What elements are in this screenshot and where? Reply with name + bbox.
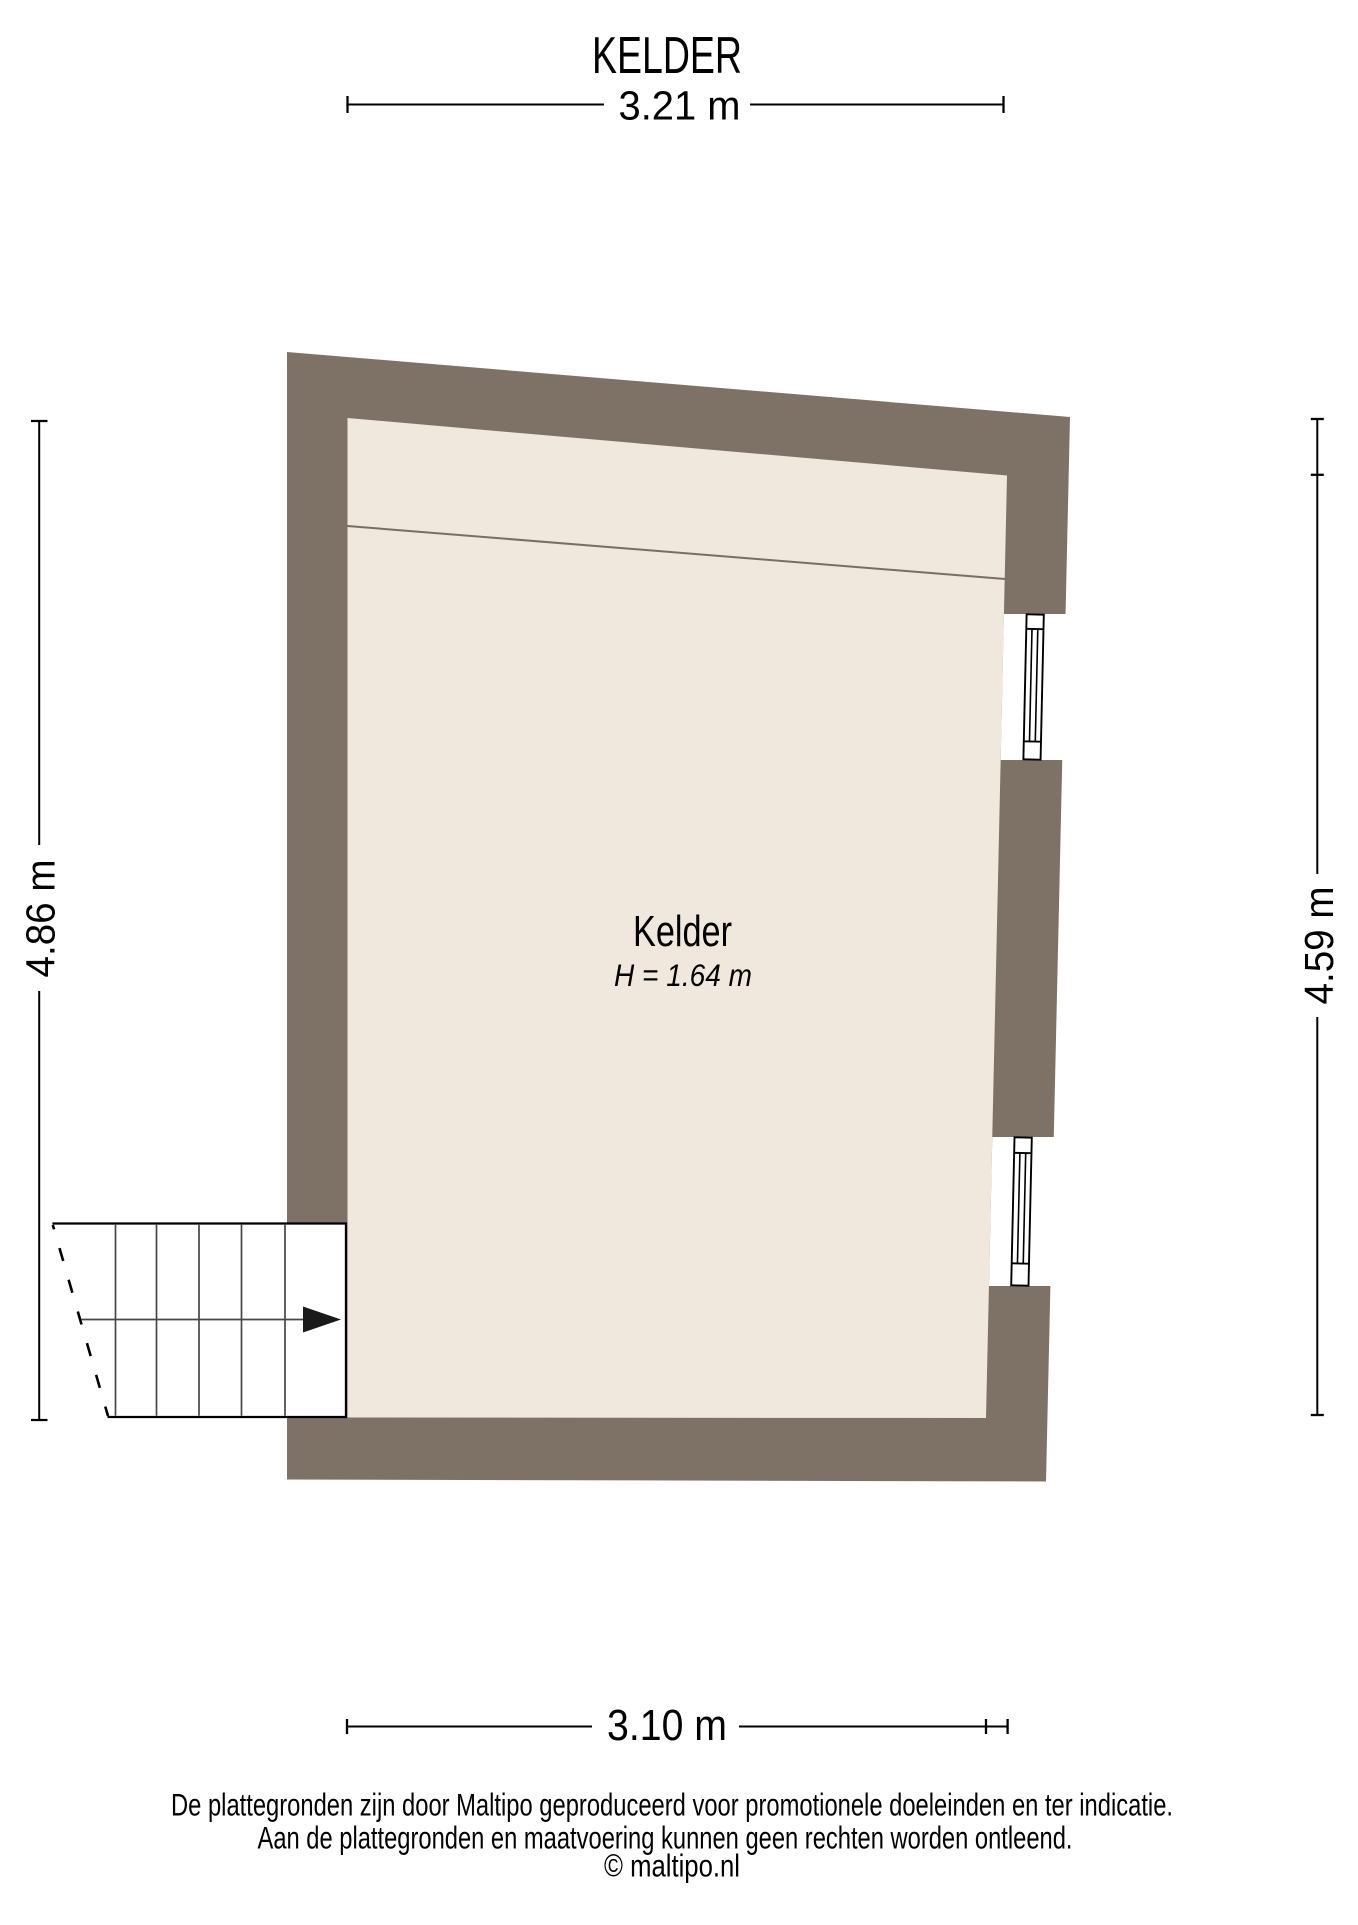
- svg-text:De plattegronden zijn door Mal: De plattegronden zijn door Maltipo gepro…: [171, 1786, 1173, 1822]
- svg-text:4.59 m: 4.59 m: [1296, 887, 1342, 1005]
- svg-text:3.10 m: 3.10 m: [607, 1701, 727, 1750]
- svg-text:© maltipo.nl: © maltipo.nl: [604, 1848, 740, 1884]
- svg-text:Kelder: Kelder: [633, 907, 732, 956]
- svg-text:3.21 m: 3.21 m: [619, 83, 741, 129]
- svg-text:KELDER: KELDER: [592, 27, 742, 85]
- svg-text:4.86 m: 4.86 m: [18, 860, 64, 978]
- svg-text:H = 1.64 m: H = 1.64 m: [614, 957, 752, 993]
